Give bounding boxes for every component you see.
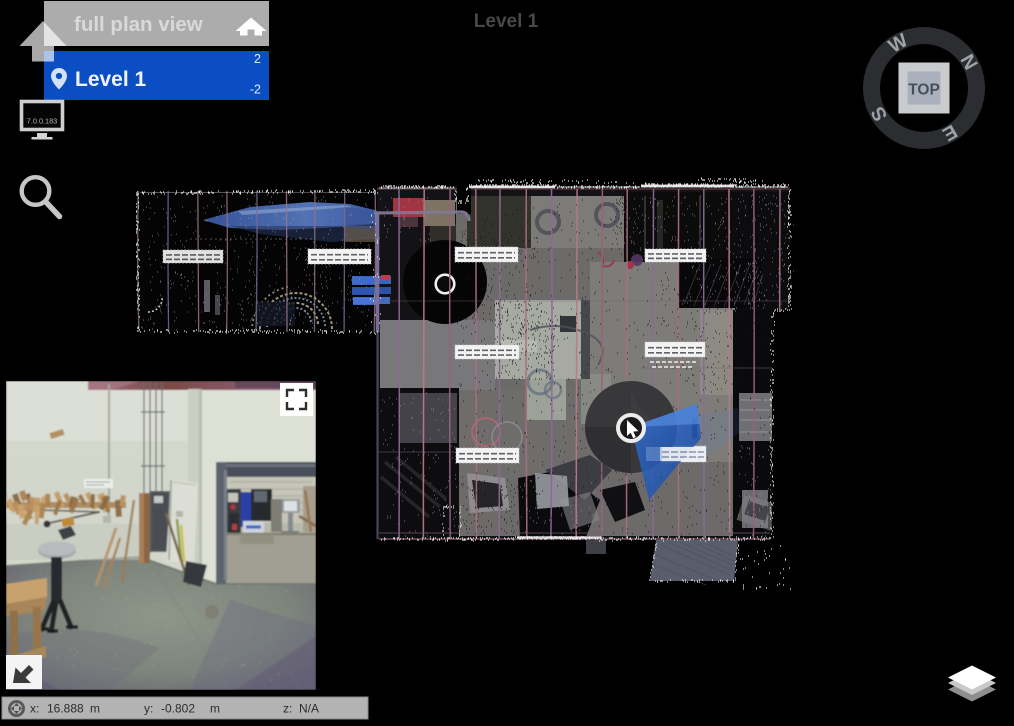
svg-text:TOP: TOP <box>908 82 940 99</box>
svg-text:x:: x: <box>30 702 39 716</box>
svg-text:-0.802: -0.802 <box>161 702 195 716</box>
svg-text:7.0.0.183: 7.0.0.183 <box>27 117 57 126</box>
svg-text:16.888: 16.888 <box>47 702 84 716</box>
svg-text:m: m <box>90 702 100 716</box>
svg-text:full plan view: full plan view <box>74 13 203 36</box>
svg-text:Level 1: Level 1 <box>474 11 539 32</box>
svg-text:Level 1: Level 1 <box>75 68 147 91</box>
svg-text:N/A: N/A <box>299 702 319 716</box>
svg-text:m: m <box>210 702 220 716</box>
svg-text:y:: y: <box>144 702 153 716</box>
svg-text:2: 2 <box>254 52 261 66</box>
svg-text:z:: z: <box>283 702 292 716</box>
svg-text:-2: -2 <box>250 83 261 97</box>
